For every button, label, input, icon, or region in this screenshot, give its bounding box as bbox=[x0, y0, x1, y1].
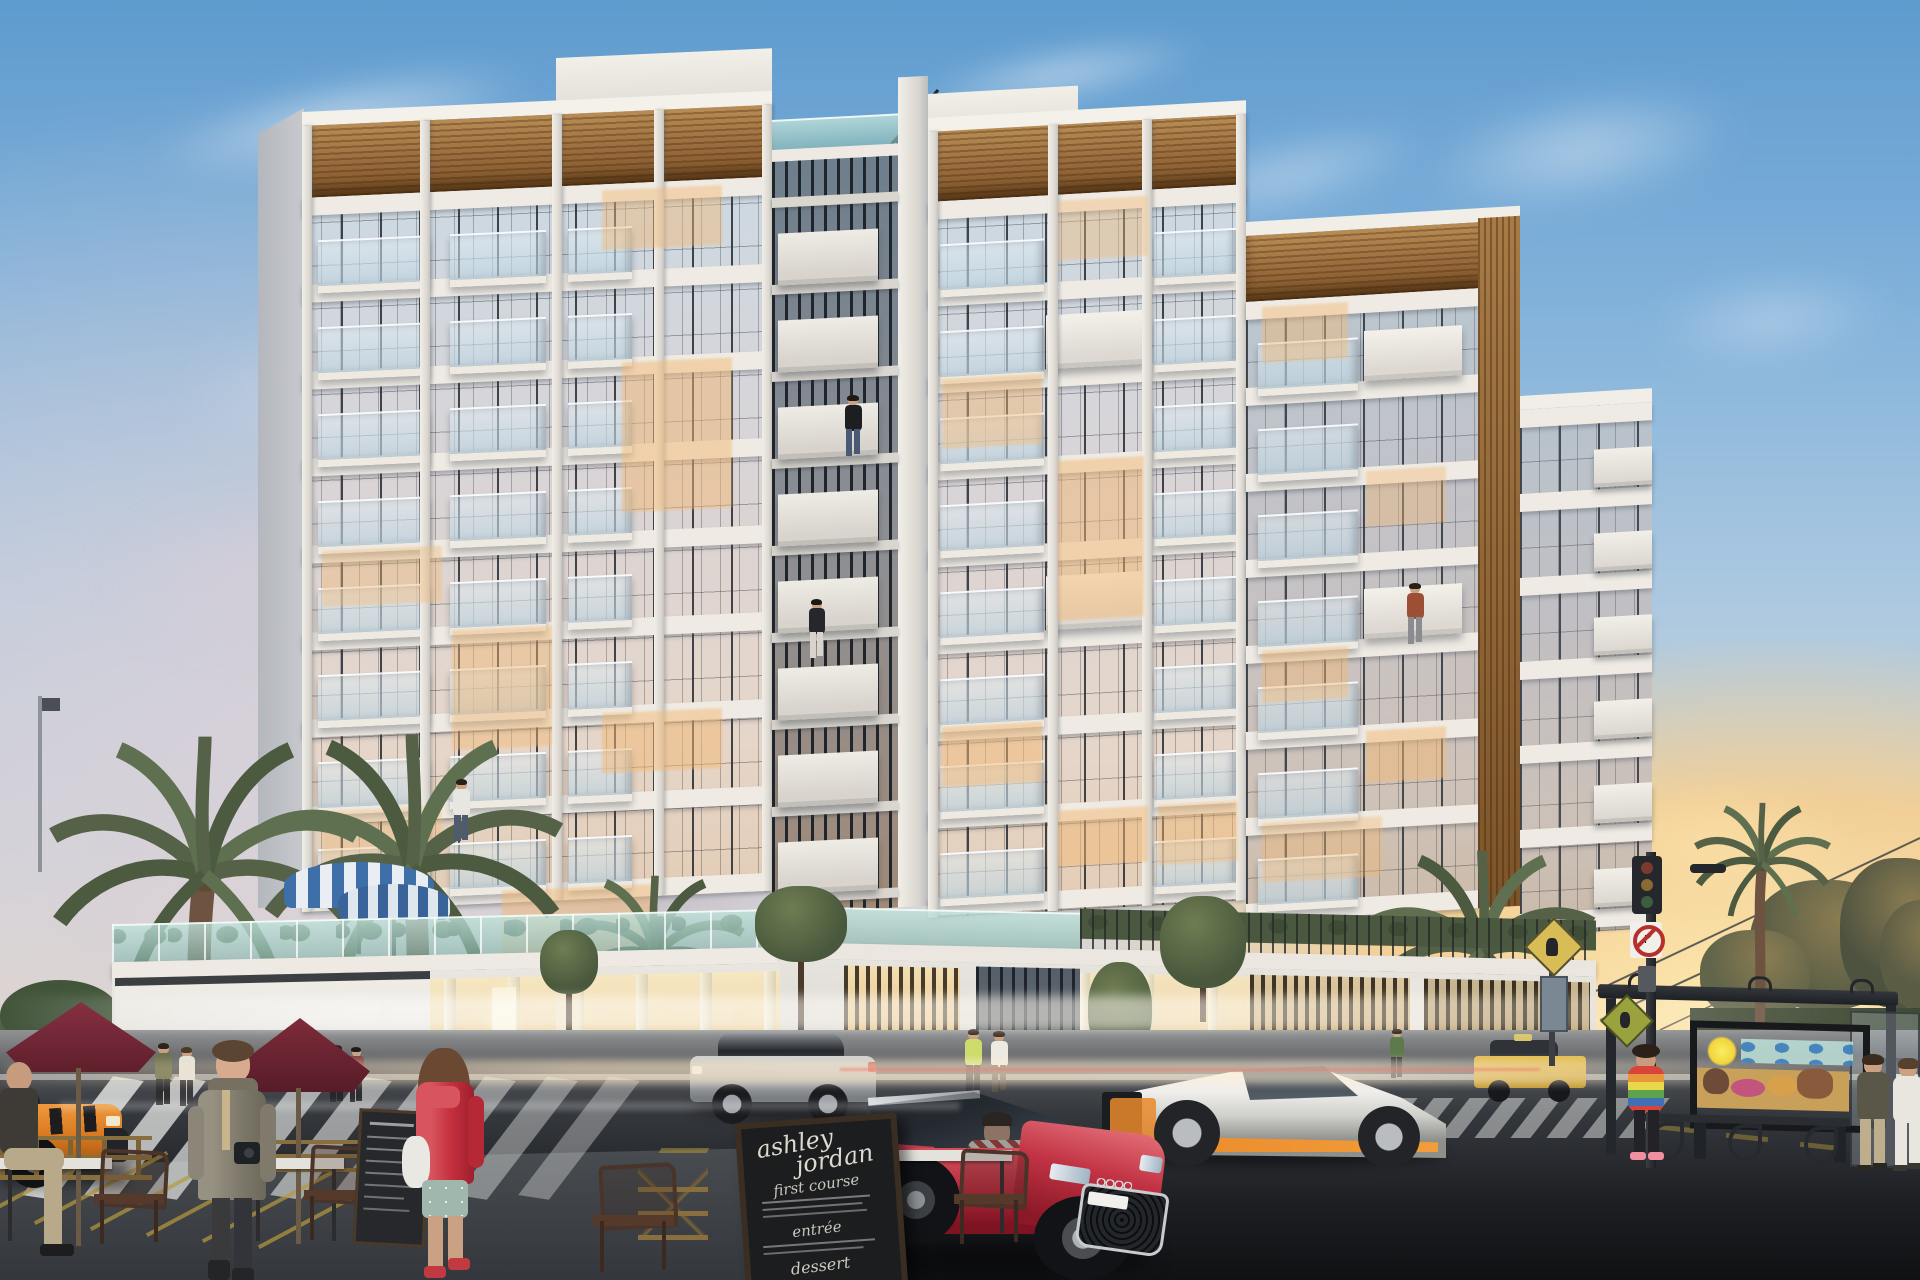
woman-trench-coat bbox=[186, 1046, 278, 1280]
boot bbox=[208, 1260, 230, 1280]
leg bbox=[448, 1216, 463, 1262]
leg bbox=[428, 1216, 443, 1268]
hair bbox=[1862, 1054, 1884, 1066]
boot bbox=[232, 1268, 254, 1280]
architectural-rendering: ↱ ashley jordan first course entré bbox=[0, 0, 1920, 1280]
leg bbox=[1895, 1120, 1906, 1167]
pink-shoe bbox=[1648, 1152, 1664, 1160]
leg bbox=[1634, 1110, 1645, 1154]
shoe bbox=[1873, 1163, 1887, 1169]
bag-strap bbox=[222, 1090, 230, 1150]
arm bbox=[260, 1104, 276, 1182]
woman-red-coat bbox=[404, 1052, 492, 1280]
tie-dye-hoodie bbox=[1628, 1066, 1664, 1112]
torso bbox=[1893, 1076, 1920, 1123]
leg bbox=[1648, 1110, 1659, 1154]
foreground-people bbox=[0, 0, 1920, 1280]
torso bbox=[1857, 1072, 1889, 1121]
hair-bun bbox=[212, 1040, 254, 1062]
red-shoe bbox=[448, 1258, 470, 1270]
camera-lens bbox=[244, 1148, 254, 1158]
leg bbox=[1860, 1119, 1872, 1168]
arm bbox=[468, 1096, 484, 1168]
arm bbox=[188, 1106, 204, 1180]
leg bbox=[212, 1198, 230, 1264]
leg bbox=[1874, 1119, 1886, 1165]
woman-white-dress bbox=[1888, 1060, 1920, 1172]
girl-tie-dye-hoodie bbox=[1622, 1048, 1670, 1166]
hair bbox=[1898, 1058, 1919, 1069]
red-shoe bbox=[424, 1266, 446, 1278]
collar bbox=[426, 1086, 460, 1108]
leg bbox=[234, 1198, 252, 1270]
pink-shoe bbox=[1630, 1152, 1646, 1160]
shoe bbox=[1908, 1163, 1920, 1169]
shoe bbox=[1893, 1165, 1907, 1171]
leg bbox=[1909, 1120, 1920, 1165]
shoe bbox=[1857, 1165, 1871, 1171]
hair bbox=[1632, 1044, 1660, 1058]
floral-skirt bbox=[422, 1180, 468, 1218]
